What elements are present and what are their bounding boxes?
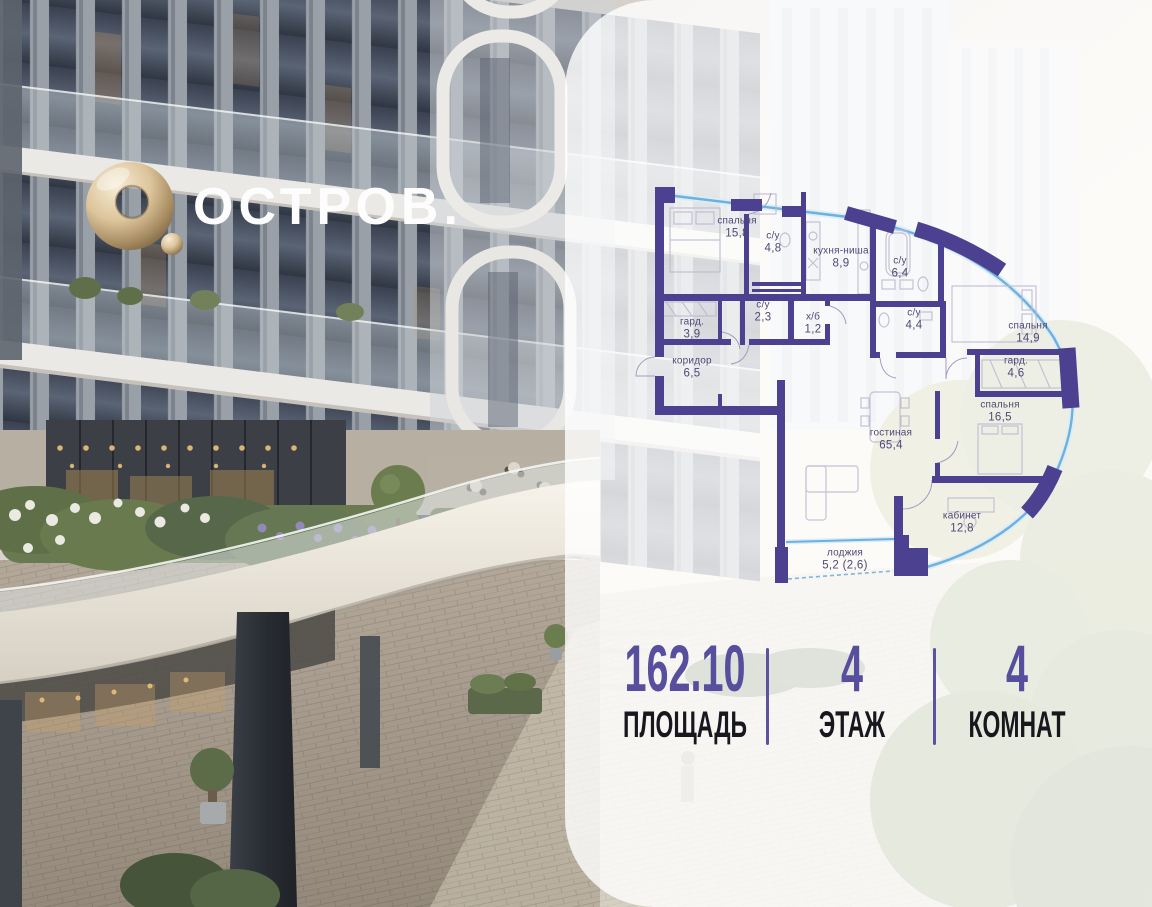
stat-area-label: ПЛОЩАДЬ (622, 708, 747, 741)
room-label-wardrobe-2: гард. 4,6 (1004, 355, 1028, 380)
stat-area-value: 162.10 (624, 640, 745, 696)
stat-floor-value: 4 (820, 640, 884, 696)
room-label-wardrobe-1: гард. 3,9 (680, 316, 704, 341)
room-label-bath-3: с/у 2,3 (755, 299, 772, 324)
room-label-utility: х/б 1,2 (805, 311, 822, 336)
room-label-bedroom-3: спальня 16,5 (980, 399, 1019, 424)
room-label-bedroom-2: спальня 14,9 (1008, 320, 1047, 345)
stat-floor: 4 ЭТАЖ (799, 640, 906, 741)
ostrov-logo: ОСТРОВ. (75, 148, 505, 278)
floor-plan-drawing (630, 180, 1100, 605)
apartment-stats: 162.10 ПЛОЩАДЬ 4 ЭТАЖ 4 КОМНАТ (612, 640, 1090, 752)
logo-mark-icon (86, 162, 183, 255)
logo-wordmark: ОСТРОВ. (193, 178, 463, 236)
stat-rooms-value: 4 (970, 640, 1064, 696)
stat-floor-label: ЭТАЖ (819, 708, 885, 741)
room-label-bath-2: с/у 6,4 (892, 255, 909, 280)
room-label-living-room: гостиная 65,4 (870, 427, 912, 452)
curved-walls (846, 213, 1071, 513)
floor-plan: спальня 15,8 с/у 4,8 кухня-ниша 8,9 с/у … (630, 180, 1100, 605)
terrace-column (229, 612, 297, 907)
listing-card: ОСТРОВ. (0, 0, 1152, 907)
stat-area: 162.10 ПЛОЩАДЬ (584, 640, 786, 741)
room-label-bath-4: с/у 4,4 (906, 307, 923, 332)
stats-divider (766, 648, 769, 745)
room-label-bedroom-1: спальня 15,8 (717, 215, 756, 240)
stats-divider (933, 648, 936, 745)
room-label-kitchen: кухня-ниша 8,9 (813, 245, 869, 270)
stat-rooms-label: КОМНАТ (969, 708, 1066, 741)
room-label-bath-1: с/у 4,8 (765, 230, 782, 255)
room-label-corridor: коридор 6,5 (672, 355, 712, 380)
stat-rooms: 4 КОМНАТ (939, 640, 1095, 741)
room-label-study: кабинет 12,8 (943, 510, 981, 535)
room-label-loggia: лоджия 5,2 (2,6) (822, 547, 868, 572)
